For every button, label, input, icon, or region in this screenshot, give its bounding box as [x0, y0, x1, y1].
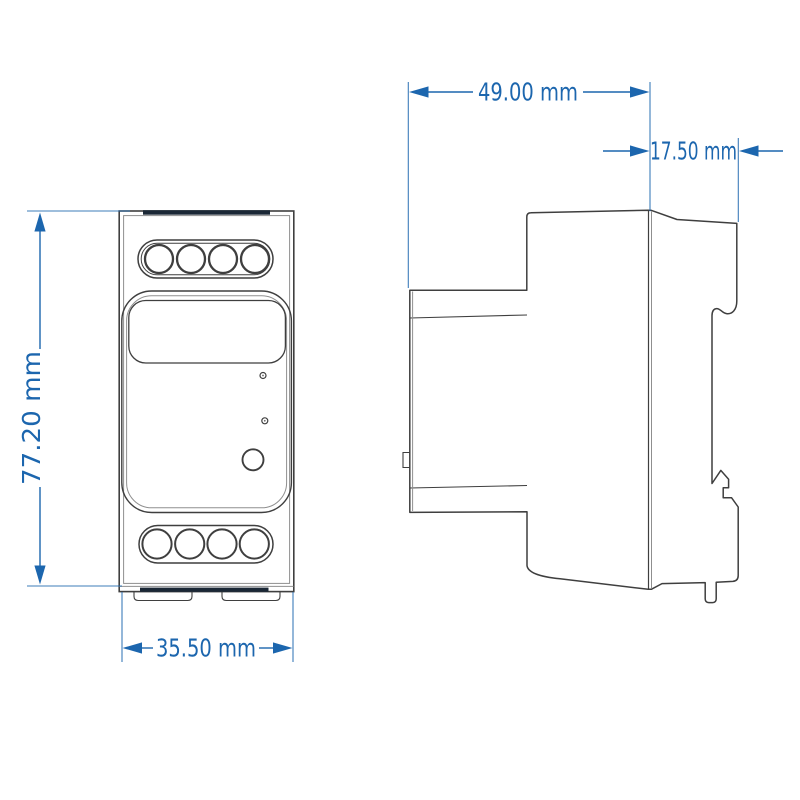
height-arrow-down-icon — [34, 566, 45, 585]
upper-terminal-hole-4 — [241, 245, 269, 273]
upper-terminal-hole-2 — [177, 245, 205, 273]
depth-arrow-left-icon — [409, 86, 429, 97]
upper-terminal-lip-edge — [410, 315, 527, 318]
height-dimension-label: 77.20 mm — [17, 351, 46, 485]
terminal-face-clip — [403, 453, 410, 468]
side-view — [403, 210, 738, 602]
lower-terminal-hole-1 — [142, 529, 171, 558]
face-panel-outer — [122, 291, 292, 513]
dimension-annotations: 77.20 mm 35.50 mm 49.00 mm — [17, 78, 783, 663]
reset-button — [243, 449, 264, 470]
front-left-foot-tab — [134, 592, 192, 601]
side-body-outline — [410, 210, 738, 602]
front-bottom-slot-bar — [140, 588, 269, 592]
depth-dimension-label: 49.00 mm — [478, 78, 578, 107]
technical-drawing-page: 77.20 mm 35.50 mm 49.00 mm — [0, 0, 800, 800]
face-panel-inner — [127, 296, 287, 508]
front-top-slot-bar — [143, 210, 270, 215]
lower-terminal-block — [139, 526, 273, 564]
lower-terminal-lip-edge — [410, 486, 527, 489]
dimension-height: 77.20 mm — [17, 211, 130, 586]
rail-offset-arrow-left-icon — [739, 145, 759, 156]
led-indicator-2-dot — [264, 420, 266, 422]
width-arrow-right-icon — [273, 642, 293, 653]
rail-offset-arrow-right-icon — [630, 145, 650, 156]
upper-terminal-hole-3 — [209, 245, 237, 273]
width-dimension-label: 35.50 mm — [156, 634, 256, 663]
dimension-rail-offset: 17.50 mm — [603, 137, 783, 223]
lower-terminal-hole-3 — [207, 529, 236, 558]
width-arrow-left-icon — [123, 642, 143, 653]
rail-offset-dimension-label: 17.50 mm — [650, 137, 737, 166]
din-module-dimension-drawing: 77.20 mm 35.50 mm 49.00 mm — [0, 0, 800, 800]
led-indicator-1-dot — [262, 375, 264, 377]
upper-terminal-hole-1 — [145, 245, 173, 273]
front-view — [119, 210, 294, 600]
height-arrow-up-icon — [34, 213, 45, 232]
dimension-depth: 49.00 mm — [408, 78, 650, 289]
lower-terminal-hole-2 — [175, 529, 204, 558]
lower-terminal-hole-4 — [240, 529, 269, 558]
depth-arrow-right-icon — [630, 86, 650, 97]
front-right-foot-tab — [222, 592, 280, 601]
dimension-width: 35.50 mm — [122, 592, 293, 663]
label-window — [129, 301, 286, 364]
